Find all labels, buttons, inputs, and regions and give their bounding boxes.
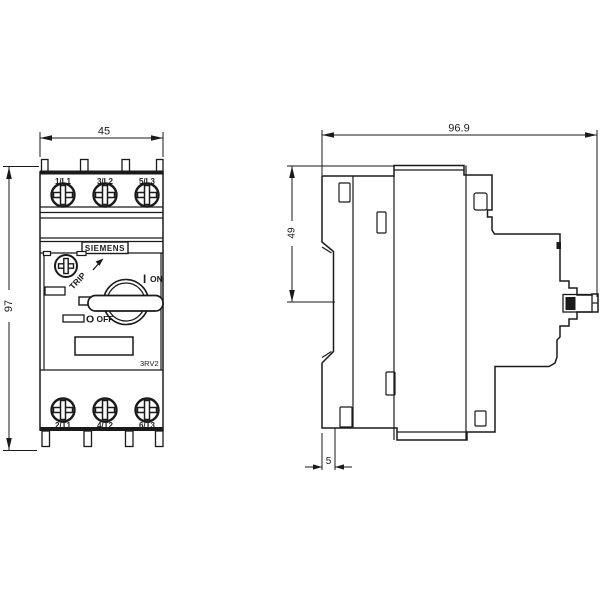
- front-view: SIEMENS 1/L1 3/L2 5/L3: [40, 160, 163, 447]
- shaft-slot: [566, 297, 576, 310]
- brand-label: SIEMENS: [85, 244, 125, 253]
- dim-value: 96.9: [448, 123, 469, 135]
- dim-side-offset: 5: [305, 428, 352, 470]
- terminal-label: 2/T1: [55, 421, 72, 430]
- side-vent-slots: [339, 183, 487, 427]
- side-profile-outline: [322, 166, 598, 441]
- front-top-tabs: [42, 160, 164, 173]
- dim-arrow-icon: [322, 132, 334, 138]
- label-field: [75, 337, 133, 355]
- dim-arrow-icon: [6, 167, 12, 179]
- side-view: [322, 166, 598, 441]
- tab: [42, 160, 49, 173]
- vent-slot: [340, 407, 352, 427]
- terminal-screw-icon: [136, 184, 159, 207]
- dim-arrow-icon: [6, 438, 12, 450]
- terminal-screw-icon: [52, 184, 75, 207]
- dim-value: 5: [326, 456, 332, 467]
- dim-arrow-icon: [289, 166, 295, 178]
- dim-arrow-icon: [335, 464, 344, 469]
- technical-drawing-canvas: SIEMENS 1/L1 3/L2 5/L3: [0, 0, 600, 600]
- dim-value: 97: [3, 300, 15, 312]
- tab: [122, 160, 130, 173]
- dim-arrow-icon: [585, 132, 597, 138]
- front-face-controls: TRIP I ON O OFF 3RV2: [44, 252, 164, 369]
- terminal-label: 5/L3: [139, 177, 156, 186]
- dim-arrow-icon: [40, 135, 52, 141]
- dim-front-width: 45: [40, 126, 163, 158]
- tab: [156, 431, 164, 447]
- latch-tick: [557, 242, 562, 249]
- on-symbol-icon: I: [143, 274, 146, 286]
- tab: [81, 160, 89, 173]
- tab: [157, 160, 164, 173]
- adjustment-dial-icon: [55, 255, 77, 277]
- setting-window: [45, 287, 65, 295]
- terminal-screw-icon: [136, 399, 159, 422]
- dim-value: 45: [98, 126, 110, 138]
- trip-arrow-head-icon: [96, 259, 104, 266]
- knob-lever-handle: [88, 296, 163, 312]
- tab: [126, 431, 134, 447]
- side-internal-lines: [353, 166, 467, 441]
- terminal-label: 6/T3: [139, 421, 156, 430]
- terminal-screw-icon: [94, 399, 117, 422]
- vent-slot: [475, 411, 486, 426]
- front-bottom-tabs: [42, 431, 163, 447]
- dim-value: 49: [287, 227, 298, 239]
- face-tick: [77, 252, 86, 256]
- vent-slot: [339, 183, 350, 202]
- off-symbol-icon: O: [86, 314, 94, 326]
- dim-side-height: 49: [287, 166, 395, 302]
- reset-window: [63, 315, 84, 322]
- dim-front-height: 97: [3, 167, 39, 451]
- model-label: 3RV2: [140, 359, 159, 368]
- shaft-coupling: [563, 295, 598, 313]
- terminal-screw-icon: [52, 399, 75, 422]
- terminal-screw-icon: [94, 184, 117, 207]
- face-tick: [44, 252, 51, 256]
- off-label: OFF: [97, 314, 114, 324]
- tab: [84, 431, 92, 447]
- tab: [42, 431, 50, 447]
- vent-slot: [377, 212, 386, 233]
- dim-arrow-icon: [313, 464, 322, 469]
- dim-side-depth: 96.9: [322, 123, 597, 298]
- top-terminal-screws: 1/L1 3/L2 5/L3: [52, 177, 159, 207]
- dim-arrow-icon: [289, 290, 295, 302]
- on-label: ON: [150, 274, 163, 284]
- dim-arrow-icon: [151, 135, 163, 141]
- motor-starter-dimension-drawing: SIEMENS 1/L1 3/L2 5/L3: [0, 0, 600, 600]
- terminal-label: 4/T2: [97, 421, 114, 430]
- bottom-terminal-screws: 2/T1 4/T2 6/T3: [52, 399, 159, 431]
- terminal-label: 1/L1: [55, 177, 72, 186]
- vent-slot: [474, 193, 487, 210]
- terminal-label: 3/L2: [97, 177, 114, 186]
